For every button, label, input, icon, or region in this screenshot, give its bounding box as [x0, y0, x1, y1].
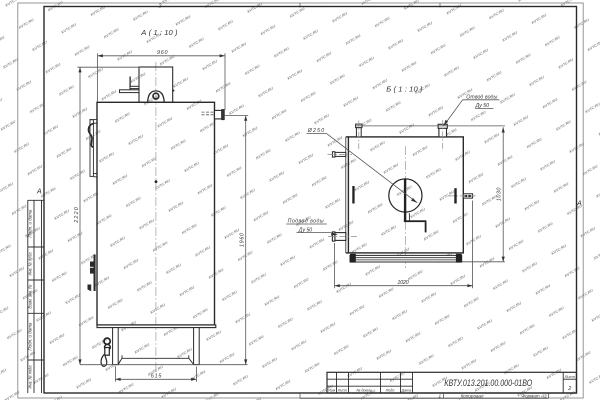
svg-text:Подп.: Подп.: [386, 388, 396, 392]
svg-text:1: 1: [438, 393, 441, 398]
svg-text:Инв. № дубл.: Инв. № дубл.: [28, 252, 33, 276]
svg-text:960: 960: [157, 50, 168, 56]
svg-text:№ докум.: № докум.: [356, 388, 372, 392]
svg-text:Подвод воды: Подвод воды: [288, 218, 324, 224]
svg-text:А ( 1 : 10 ): А ( 1 : 10 ): [140, 28, 178, 37]
svg-text:2: 2: [567, 386, 571, 392]
svg-text:Копировал: Копировал: [461, 393, 484, 398]
svg-text:1030: 1030: [497, 188, 503, 202]
svg-text:А: А: [36, 187, 42, 196]
svg-text:Подп. и дата: Подп. и дата: [28, 322, 33, 351]
svg-text:Формат А3: Формат А3: [521, 393, 547, 398]
svg-text:615: 615: [151, 374, 163, 380]
svg-text:Лист: Лист: [564, 374, 576, 379]
svg-text:КВТУ.013.201.00.000-01ВО: КВТУ.013.201.00.000-01ВО: [444, 378, 532, 388]
svg-text:Изм: Изм: [328, 388, 335, 392]
svg-text:Взам. инв. №: Взам. инв. №: [28, 284, 33, 308]
svg-text:1960: 1960: [240, 233, 246, 247]
svg-text:Инв. № подл.: Инв. № подл.: [28, 365, 33, 389]
svg-text:Б ( 1 : 10 ): Б ( 1 : 10 ): [386, 84, 423, 93]
svg-text:А: А: [576, 199, 582, 208]
svg-text:Подп. и дата: Подп. и дата: [28, 209, 33, 238]
svg-text:Лист: Лист: [337, 388, 348, 392]
svg-text:1020: 1020: [397, 280, 408, 286]
svg-text:Дата: Дата: [401, 388, 412, 392]
